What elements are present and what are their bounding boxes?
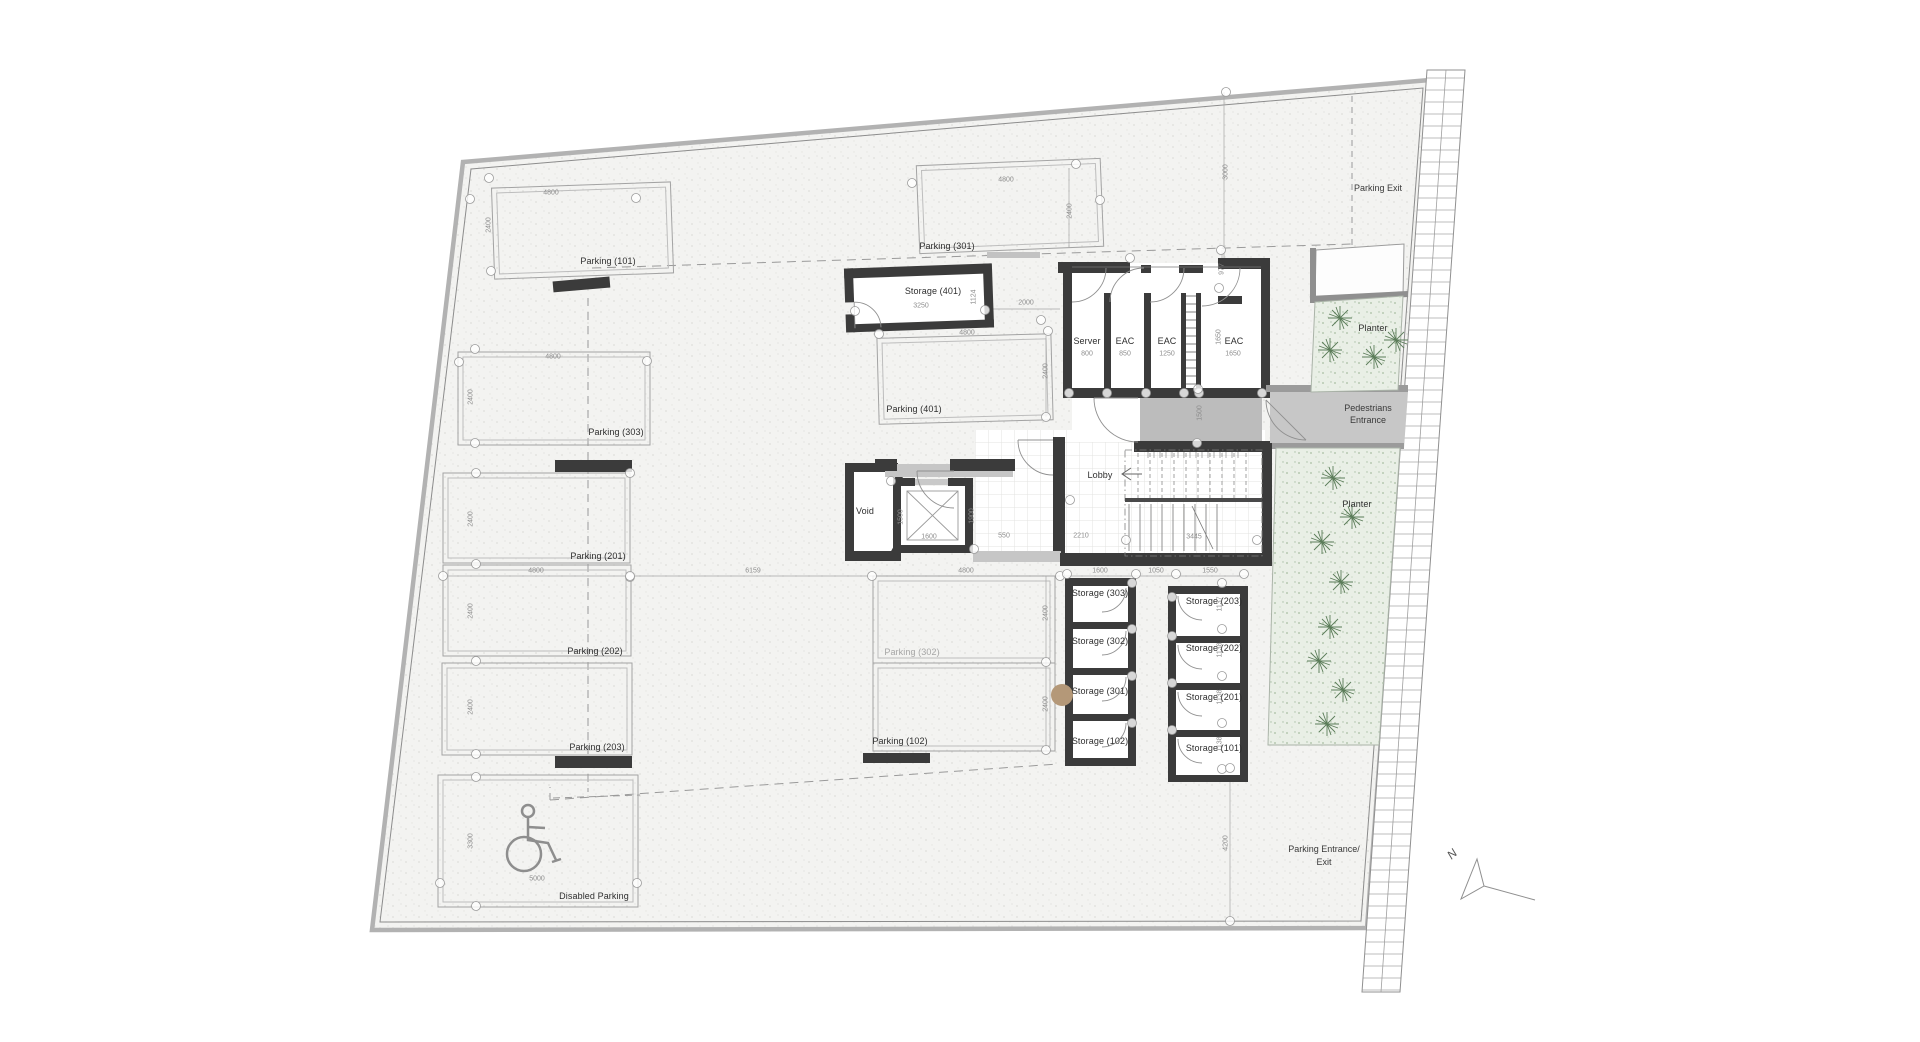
planter-top	[1310, 244, 1408, 392]
floor-plan-page: Parking Exit Pedestrians Entrance Parkin…	[0, 0, 1920, 1042]
storage-column-right	[1168, 586, 1248, 782]
storage-column-left	[1065, 578, 1136, 766]
elevator	[893, 478, 973, 553]
curb-stub	[987, 252, 1040, 258]
planter-side	[1268, 448, 1400, 745]
floor-plan-canvas	[0, 0, 1920, 1042]
north-arrow	[1461, 859, 1535, 900]
server-eac-block	[1058, 258, 1270, 398]
storage-401-room	[844, 263, 994, 332]
structural-column	[1051, 684, 1073, 706]
